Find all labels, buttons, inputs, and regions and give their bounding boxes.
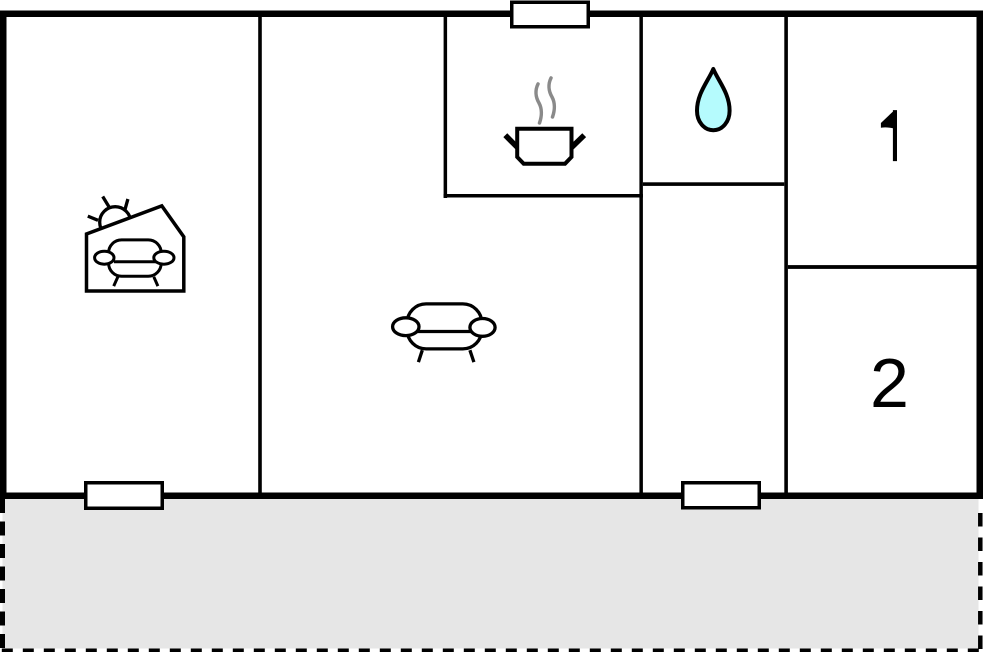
svg-text:2: 2 xyxy=(870,344,909,422)
